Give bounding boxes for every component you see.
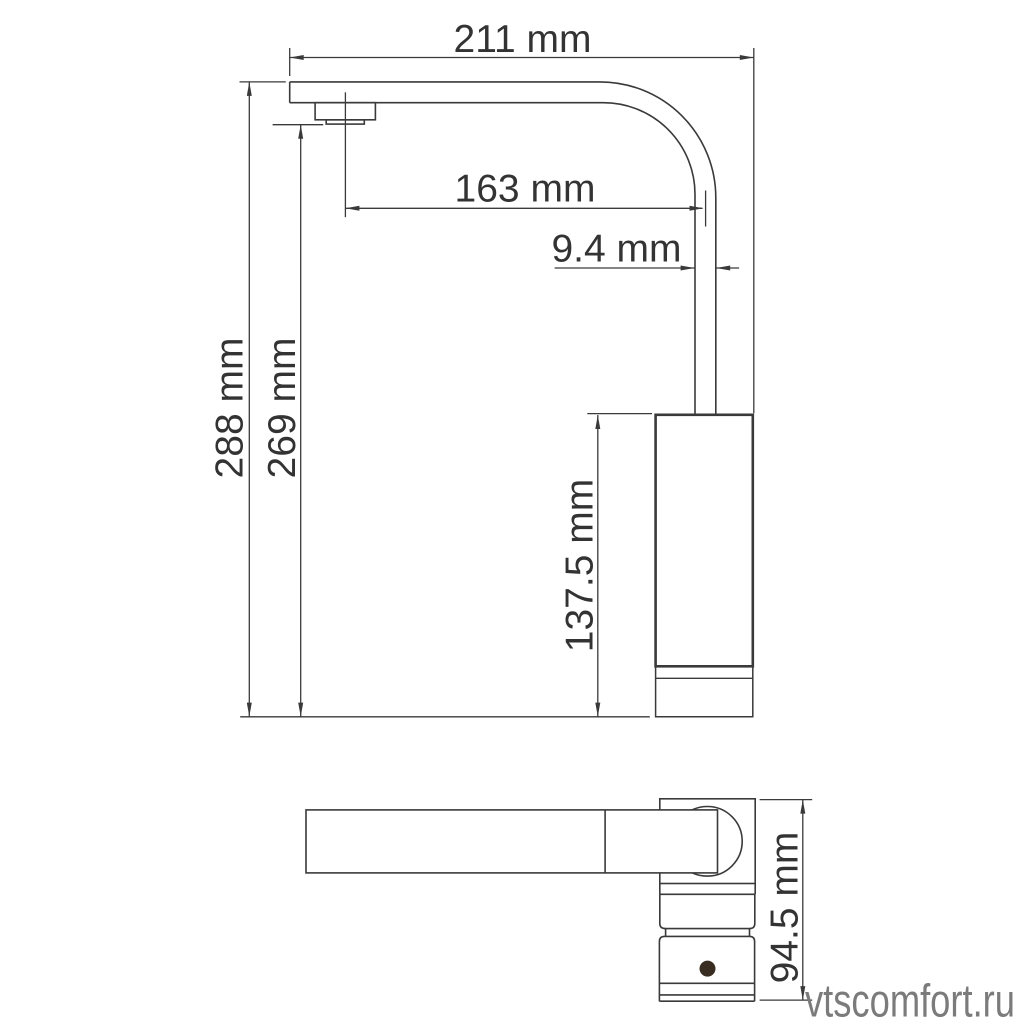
svg-text:94.5 mm: 94.5 mm — [764, 832, 807, 984]
svg-text:211 mm: 211 mm — [454, 18, 592, 61]
svg-text:288 mm: 288 mm — [209, 338, 252, 479]
svg-text:163 mm: 163 mm — [455, 168, 596, 211]
svg-text:269 mm: 269 mm — [261, 338, 304, 479]
svg-text:9.4 mm: 9.4 mm — [551, 228, 681, 271]
svg-text:137.5 mm: 137.5 mm — [559, 479, 602, 652]
svg-text:vtscomfort.ru: vtscomfort.ru — [805, 975, 1015, 1027]
